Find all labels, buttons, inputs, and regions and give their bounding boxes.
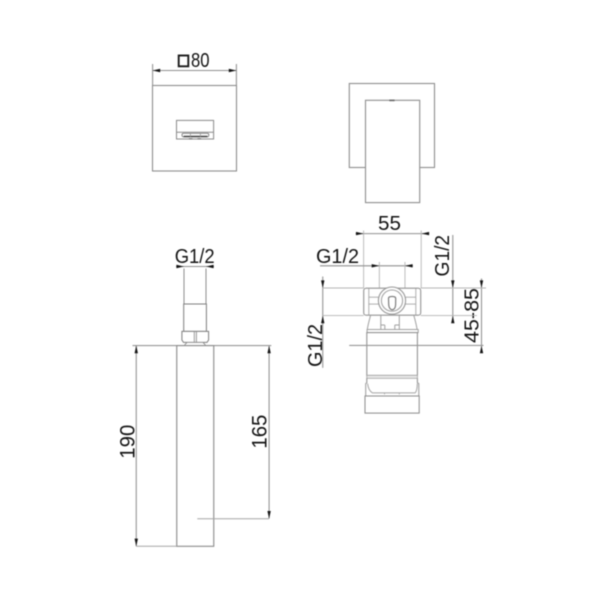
svg-text:G1/2: G1/2 [432,235,454,277]
svg-text:G1/2: G1/2 [175,246,215,268]
svg-text:G1/2: G1/2 [305,324,327,367]
svg-text:190: 190 [117,425,140,459]
svg-text:G1/2: G1/2 [316,246,359,268]
svg-text:165: 165 [249,415,272,449]
svg-text:80: 80 [191,50,210,72]
svg-text:55: 55 [378,213,401,235]
